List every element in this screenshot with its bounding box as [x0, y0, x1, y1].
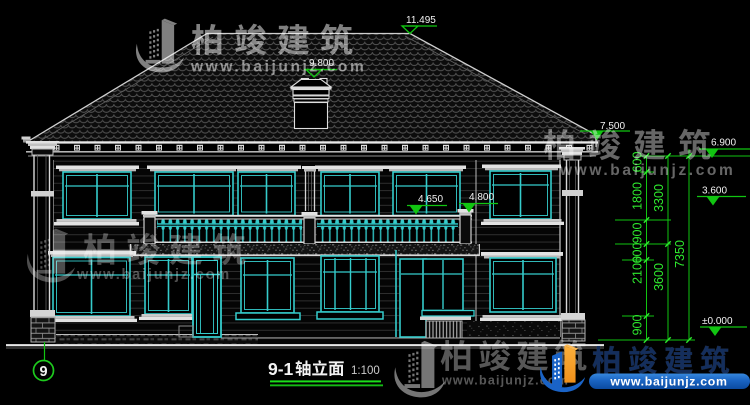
- svg-text:www.baijunjz.com: www.baijunjz.com: [190, 59, 366, 76]
- svg-text:3600: 3600: [652, 263, 666, 291]
- svg-text:1:100: 1:100: [351, 365, 380, 377]
- svg-text:2100: 2100: [631, 256, 645, 284]
- svg-text:www.baijunjz.com: www.baijunjz.com: [559, 162, 735, 179]
- svg-text:7350: 7350: [673, 240, 687, 268]
- svg-text:www.baijunjz.com: www.baijunjz.com: [609, 375, 727, 389]
- svg-text:900: 900: [631, 315, 645, 336]
- svg-text:3.600: 3.600: [702, 186, 727, 197]
- svg-text:±0.000: ±0.000: [702, 316, 733, 327]
- svg-text:3300: 3300: [652, 184, 666, 212]
- svg-text:900: 900: [631, 223, 645, 244]
- svg-text:11.495: 11.495: [406, 15, 436, 26]
- svg-text:www.baijunjz.com: www.baijunjz.com: [76, 267, 231, 283]
- svg-text:1800: 1800: [631, 182, 645, 210]
- svg-text:4.650: 4.650: [418, 194, 443, 205]
- svg-text:6.900: 6.900: [711, 138, 736, 149]
- svg-text:9: 9: [39, 364, 47, 380]
- svg-text:4.800: 4.800: [469, 192, 494, 203]
- svg-text:9-1: 9-1: [268, 359, 294, 379]
- svg-text:7.500: 7.500: [600, 121, 625, 132]
